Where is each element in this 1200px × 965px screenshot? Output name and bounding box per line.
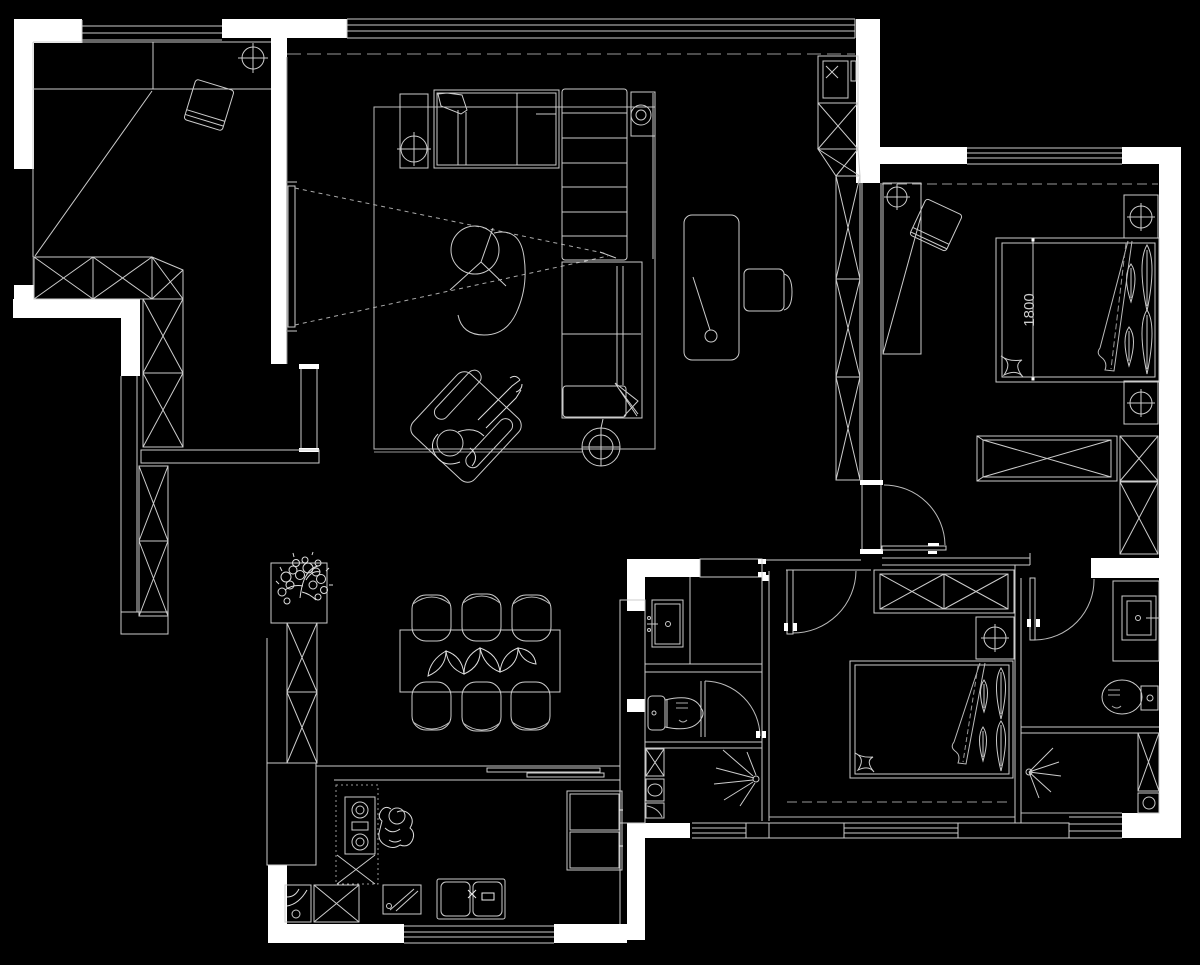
svg-text:1800: 1800: [1021, 293, 1038, 326]
